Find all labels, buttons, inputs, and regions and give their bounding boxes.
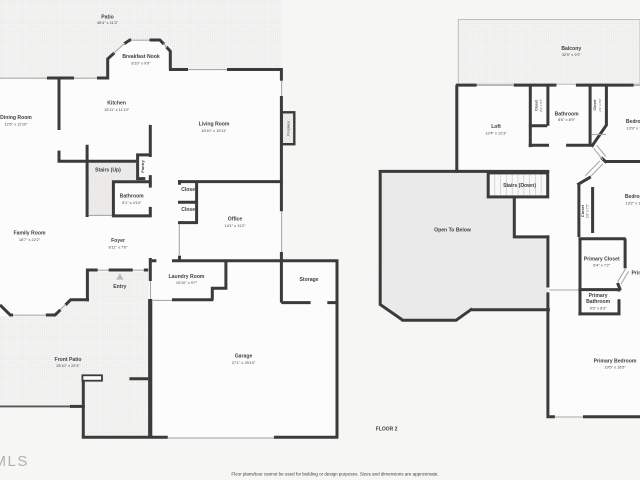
svg-text:Loft: Loft [491,124,501,130]
svg-text:8'11" x 7'6": 8'11" x 7'6" [109,245,129,250]
svg-text:5'1" x 4'10": 5'1" x 4'10" [122,200,142,205]
svg-text:6'4" x 7'2": 6'4" x 7'2" [593,262,611,267]
svg-text:9'3" x 8'3": 9'3" x 8'3" [590,306,608,311]
svg-text:19'5" x 16'5": 19'5" x 16'5" [604,364,626,369]
svg-text:Bedroom: Bedroom [626,119,640,125]
svg-text:Breakfast Nook: Breakfast Nook [122,54,160,60]
svg-text:27'1" x 25'10": 27'1" x 25'10" [232,360,256,365]
svg-text:Bathroom: Bathroom [586,299,611,305]
svg-text:13'9" x 11'6": 13'9" x 11'6" [626,125,640,130]
svg-text:Closet: Closet [181,207,197,213]
svg-text:32'9" x 9'2": 32'9" x 9'2" [562,52,582,57]
svg-text:Primary: Primary [589,293,608,299]
svg-text:Foyer: Foyer [111,238,125,244]
svg-text:Primary: Primary [632,270,640,276]
svg-text:10'10" x 9'7": 10'10" x 9'7" [176,280,198,285]
svg-text:Stairs (Up): Stairs (Up) [95,168,121,174]
svg-text:2'2" x 6'9": 2'2" x 6'9" [598,98,602,111]
svg-text:Bathroom: Bathroom [120,194,145,200]
svg-text:15'11" x 11'10": 15'11" x 11'10" [104,107,130,112]
svg-text:Garage: Garage [235,354,253,360]
svg-text:8'6" x 8'9": 8'6" x 8'9" [558,117,576,122]
svg-text:Entry: Entry [113,284,126,290]
svg-text:1'9" x 7'5": 1'9" x 7'5" [586,204,590,218]
svg-text:8'10" x 9'9": 8'10" x 9'9" [131,60,151,65]
svg-text:Dining Room: Dining Room [0,115,32,121]
svg-text:Floor plans/tour cannot be use: Floor plans/tour cannot be used for buil… [231,471,438,476]
svg-text:12'6" x 11'10": 12'6" x 11'10" [4,121,28,126]
svg-text:12'4" x 12'3": 12'4" x 12'3" [485,131,507,136]
svg-text:Closet: Closet [534,99,538,111]
svg-text:14'1" x 11'2": 14'1" x 11'2" [224,223,246,228]
svg-text:Family Room: Family Room [14,231,46,237]
svg-text:16'10" x 15'11": 16'10" x 15'11" [201,128,227,133]
svg-text:FLOOR 2: FLOOR 2 [376,426,398,432]
svg-text:Storage: Storage [300,277,319,283]
svg-text:Kitchen: Kitchen [107,101,126,107]
svg-text:Closet: Closet [593,99,597,111]
svg-text:MLS: MLS [0,453,29,470]
svg-text:3'3" x 6'7": 3'3" x 6'7" [539,99,543,112]
svg-text:Bedroom: Bedroom [625,194,640,200]
svg-text:Office: Office [228,217,243,223]
svg-text:Closet: Closet [181,187,197,193]
svg-text:28'10" x 20'3": 28'10" x 20'3" [56,363,80,368]
svg-text:Pantry: Pantry [140,160,145,173]
svg-text:Stairs (Down): Stairs (Down) [503,183,536,189]
svg-text:Living Room: Living Room [199,122,230,128]
svg-text:Fireplace: Fireplace [286,121,290,136]
svg-text:45'4" x 11'3": 45'4" x 11'3" [97,20,119,25]
svg-text:18'7" x 22'2": 18'7" x 22'2" [19,237,41,242]
svg-text:Open To Below: Open To Below [434,228,471,234]
svg-text:13'2" x 11'2": 13'2" x 11'2" [625,200,640,205]
svg-text:Closet: Closet [580,204,585,217]
